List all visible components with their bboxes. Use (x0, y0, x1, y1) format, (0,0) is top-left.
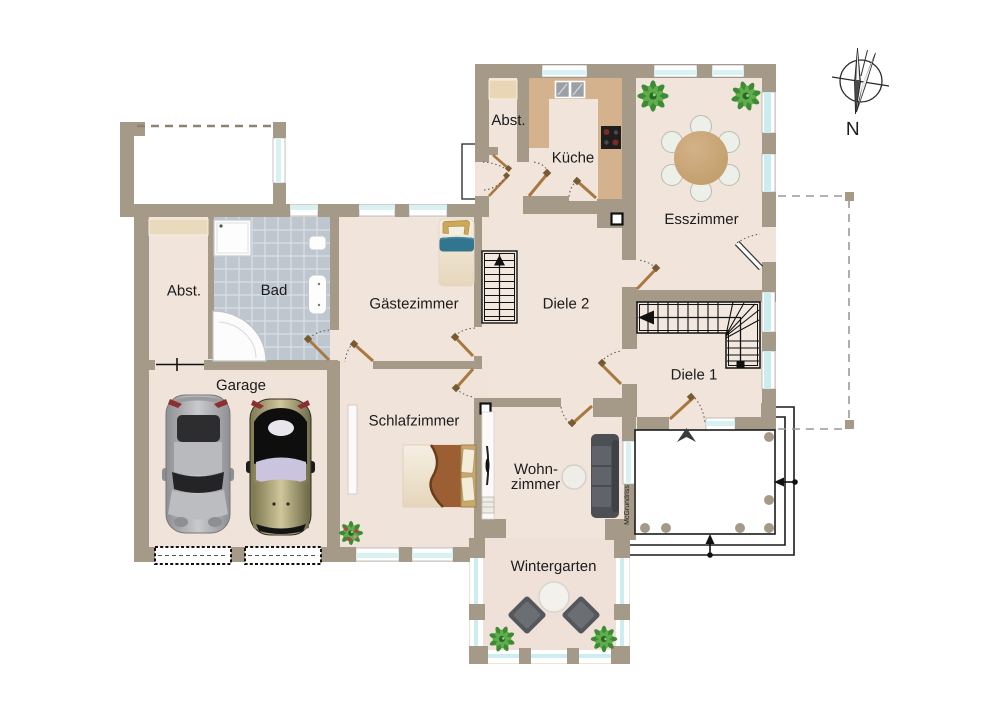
svg-text:McGrundriss: McGrundriss (623, 485, 631, 525)
svg-text:Wintergarten: Wintergarten (511, 558, 597, 575)
svg-text:Bad: Bad (261, 282, 288, 299)
svg-text:Garage: Garage (216, 377, 266, 394)
svg-text:zimmer: zimmer (511, 476, 560, 493)
svg-text:N: N (846, 119, 860, 140)
svg-text:Abst.: Abst. (491, 112, 525, 129)
svg-text:Küche: Küche (552, 150, 595, 167)
svg-text:Abst.: Abst. (167, 283, 201, 300)
svg-text:Diele 2: Diele 2 (543, 296, 590, 313)
svg-text:Diele 1: Diele 1 (671, 367, 718, 384)
svg-text:Gästezimmer: Gästezimmer (369, 296, 458, 313)
svg-text:Esszimmer: Esszimmer (664, 211, 738, 228)
svg-text:Schlafzimmer: Schlafzimmer (369, 413, 460, 430)
